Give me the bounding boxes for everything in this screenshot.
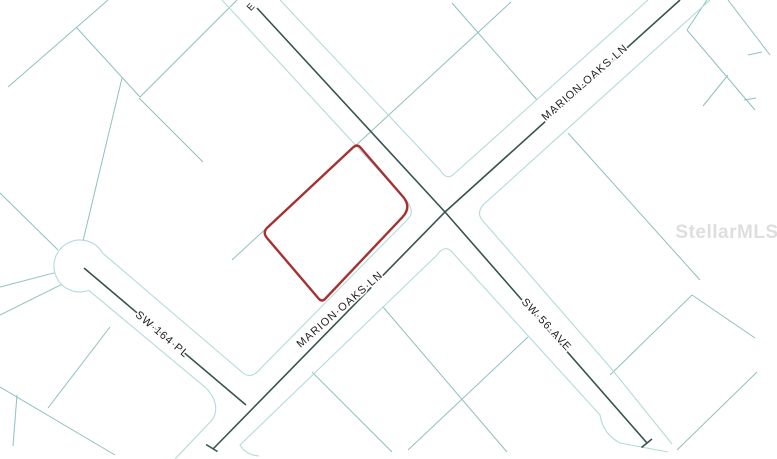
parcel-line — [687, 0, 707, 30]
road-fillet — [440, 170, 454, 177]
parcel-line-tick — [748, 52, 762, 55]
road-edges — [54, 0, 710, 459]
road-edge-marion-se-upper — [483, 0, 710, 205]
road-edge-sw56-nw-lower — [452, 252, 668, 452]
road-edge-sw56-ne-lower — [483, 221, 672, 444]
parcel-line — [312, 372, 392, 452]
parcel-line — [8, 0, 108, 87]
parcel-line — [408, 337, 528, 450]
parcel-line — [0, 193, 58, 250]
centerline-end-tick — [642, 439, 653, 448]
parcel-line — [677, 372, 757, 450]
road-edge-marion-nw-lower — [175, 419, 213, 459]
road-edge-sw164-ne — [103, 253, 244, 373]
parcel-line — [610, 295, 692, 375]
cul-de-sac-bulb — [54, 240, 103, 292]
parcel-line — [0, 284, 62, 315]
parcel-line — [692, 295, 755, 338]
parcel-line — [83, 78, 122, 241]
parcel-line — [687, 30, 755, 110]
road-fillet — [437, 249, 452, 255]
street-label-sw-56-ave: SW·56·AVE — [519, 296, 574, 354]
road-edge-sw56-ne-upper — [280, 0, 440, 170]
street-labels: MARION·OAKS·LN MARION·OAKS·LN SW·164·PL … — [133, 1, 631, 360]
parcel-line — [383, 307, 507, 452]
street-label-marion-oaks-ln-lower: MARION·OAKS·LN — [295, 269, 386, 350]
parcel-line — [13, 395, 17, 446]
stellar-mls-watermark: StellarMLS — [675, 222, 777, 243]
road-fillet — [243, 367, 262, 375]
road-edge-marion-nw-upper — [454, 0, 648, 174]
parcel-line — [728, 0, 770, 55]
road-fillet — [206, 388, 216, 419]
parcel-line — [76, 27, 140, 97]
road-fillet — [480, 205, 484, 221]
parcel-line — [568, 133, 700, 280]
parcel-line — [48, 327, 110, 408]
parcel-line — [140, 0, 237, 97]
road-edge-sw164-sw — [89, 290, 206, 388]
plat-map: MARION·OAKS·LN MARION·OAKS·LN SW·164·PL … — [0, 0, 777, 459]
highlighted-parcel-outline — [265, 146, 408, 301]
parcel-line — [0, 273, 55, 287]
parcel-boundary-lines — [0, 0, 770, 455]
street-label-marion-oaks-ln-upper: MARION·OAKS·LN — [540, 42, 631, 123]
street-label-partial-top: E — [245, 1, 257, 13]
parcel-line — [703, 75, 728, 106]
plat-map-canvas: MARION·OAKS·LN MARION·OAKS·LN SW·164·PL … — [0, 0, 777, 459]
road-edge-marion-nw-mid — [262, 219, 408, 367]
road-centerlines — [84, 0, 680, 452]
parcel-line — [139, 98, 203, 162]
